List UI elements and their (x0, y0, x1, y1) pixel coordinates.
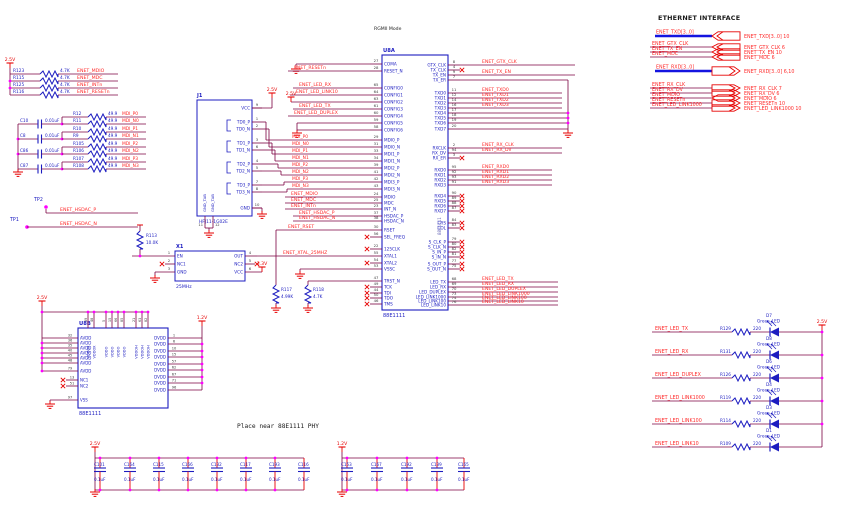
pin-name: VDDO (111, 346, 115, 357)
resistor (273, 285, 279, 303)
pin-name: AVDD (80, 361, 91, 366)
net-label: MDI_P1 (122, 126, 138, 132)
led-type: Green_LED (757, 342, 780, 347)
capacitor-value: 0.01uF (45, 133, 60, 138)
placement-note: Place near 88E1111 PHY (237, 423, 319, 430)
junction-dot (201, 356, 204, 359)
led-type: Green_LED (757, 319, 780, 324)
junction-dot (201, 382, 204, 385)
led-refdes: D1 (766, 428, 772, 433)
pin-name: TX_ER (432, 78, 446, 83)
pin-number: 82 (144, 318, 148, 322)
pin-number: 15 (172, 352, 177, 356)
pin-name: CONFIG0 (384, 86, 403, 91)
resistor-refdes: R118 (313, 287, 324, 292)
pin-number: 53 (374, 263, 379, 268)
pin-number: 54 (374, 257, 379, 262)
led-refdes: D8 (766, 336, 772, 341)
junction-dot (158, 457, 161, 460)
pin-name: OUT (234, 254, 243, 259)
net-label: ENET_MDC (652, 51, 679, 57)
capacitor-value: 0.1uF (401, 477, 413, 482)
pin-number: 21 (132, 318, 136, 322)
resistor-value: 220 (753, 418, 761, 423)
pin-name: TD1_P (236, 141, 251, 146)
resistor-value: 4.7K (60, 89, 70, 95)
pin-name: MDI2_P (384, 166, 400, 171)
capacitor-value: 0.1uF (458, 477, 470, 482)
pin-name: VDDO (105, 346, 109, 357)
junction-dot (821, 377, 824, 380)
pin-name: NC1 (80, 378, 89, 383)
u8a-part-number: 88E1111 (383, 313, 405, 319)
pin-name: XTAL1 (384, 254, 397, 259)
resistor-refdes: R10 (73, 126, 82, 131)
pin-number: 91 (452, 179, 457, 184)
capacitor-value: 0.1uF (269, 477, 281, 482)
x1-frequency: 25MHz (176, 284, 192, 290)
power-label: 1.2V (337, 441, 348, 447)
pin-number: 6 (256, 144, 259, 149)
net-label: ENET_TXD[3..0] (656, 29, 694, 35)
capacitor-value: 0.01uF (45, 163, 60, 168)
net-label: ENET_RESETn (294, 65, 326, 71)
net-label: MDI_N0 (292, 141, 309, 147)
pin-number: 63 (138, 318, 142, 322)
resistor-value: 4.99K (281, 294, 293, 299)
offpage-chevron (729, 67, 735, 75)
net-label: MDI_N2 (122, 148, 139, 154)
pin-number: 31 (374, 141, 379, 146)
capacitor-value: 0.1uF (153, 477, 165, 482)
pin-number: 23 (374, 203, 379, 208)
u8a-refdes: U8A (383, 48, 395, 54)
pin-number: 56 (374, 231, 379, 236)
net-label: ENET_LED_RX (299, 82, 331, 88)
net-label: MDI_P1 (292, 148, 308, 154)
junction-dot (436, 457, 439, 460)
capacitor-value: 0.01uF (45, 118, 60, 123)
pin-name: GND_TAB (210, 194, 215, 212)
pin-number: 27 (374, 58, 379, 63)
net-label: ENET_GTX_CLK (482, 59, 518, 65)
pin-name: TXD6 (434, 121, 447, 126)
net-label: MDI_P2 (292, 162, 308, 168)
pin-name: GND_TAB (202, 194, 207, 212)
junction-dot (821, 400, 824, 403)
pin-number: 2 (256, 123, 259, 128)
net-label: ENET_LED_LINK1000 (652, 102, 702, 108)
net-label: MDI_N3 (292, 183, 309, 189)
pin-name: DVDD (154, 342, 166, 347)
pin-name: MDI2_N (384, 173, 400, 178)
pin-number: 50 (374, 292, 379, 297)
pin-number: 85 (120, 318, 124, 322)
led-type: Green_LED (757, 365, 780, 370)
junction-dot (821, 354, 824, 357)
junction-dot (346, 489, 349, 492)
pin-number: 39 (84, 318, 88, 322)
led-type: Green_LED (757, 388, 780, 393)
pin-name: RESET_N (384, 69, 403, 74)
resistor-refdes: R116 (13, 89, 24, 95)
pin-name: COL (437, 226, 446, 231)
net-label: ENET_LED_DUPLEX (294, 110, 338, 116)
led-type: Green_LED (757, 411, 780, 416)
pin-name: TD2_P (236, 162, 251, 167)
junction-dot (99, 457, 102, 460)
pin-name: VDDOH (135, 345, 139, 359)
pin-number: 36 (68, 338, 73, 342)
pin-number: 10 (255, 202, 260, 207)
capacitor-refdes: C167 (371, 462, 382, 467)
resistor-refdes: R12 (73, 111, 82, 116)
pin-name: DVDD (154, 381, 166, 386)
pin-number: 61 (374, 103, 379, 108)
resistor-refdes: R131 (720, 349, 731, 354)
pin-name: TD3_N (235, 190, 250, 195)
net-label: ENET_MDIO (291, 191, 318, 197)
junction-dot (141, 311, 144, 314)
pin-number: 62 (172, 365, 177, 369)
schematic-page: ETHERNET INTERFACE RGMII Mode Place near… (0, 0, 841, 507)
junction-dot (201, 343, 204, 346)
pin-name: DVDD (154, 336, 166, 341)
pin-name: MDC (384, 201, 394, 206)
pin-name: AVDD (80, 369, 91, 374)
junction-dot (123, 311, 126, 314)
net-label: MDI_N0 (122, 118, 139, 124)
pin-name: RXD7 (434, 209, 446, 214)
pin-number: 1 (256, 116, 259, 121)
junction-dot (129, 457, 132, 460)
pin-name: MDI1_P (384, 152, 400, 157)
pair-bracket (227, 141, 231, 152)
pin-name: LED_LINK10 (421, 303, 446, 308)
net-label: ENET_TXD3 (482, 102, 509, 108)
net-label: ENET_INTn (77, 82, 102, 88)
junction-dot (41, 311, 44, 314)
pin-name: TD3_P (236, 183, 251, 188)
pin-name: VDDOH (147, 345, 151, 359)
resistor (40, 92, 58, 98)
led-type: Green_LED (757, 434, 780, 439)
junction-dot (93, 311, 96, 314)
pair-bracket (227, 183, 231, 194)
pin-name: XTAL2 (384, 261, 397, 266)
net-label: ENET_MDC (77, 75, 103, 81)
pin-name: TDO (383, 296, 394, 301)
net-label: MDI_P0 (122, 111, 138, 117)
net-label: ENET_LED_RX (655, 349, 689, 355)
resistor-value: 220 (753, 372, 761, 377)
offpage-reference: ENET_RXD[3..0] 6,10 (744, 69, 794, 75)
capacitor-refdes: C139 (431, 462, 442, 467)
pin-number: 48 (68, 358, 73, 362)
pin-number: 46 (374, 298, 379, 303)
capacitor-value: 0.1uF (211, 477, 223, 482)
capacitor-refdes: C164 (124, 462, 135, 467)
pin-name: MDI1_N (384, 159, 400, 164)
net-label: ENET_RESETn (77, 89, 110, 95)
junction-dot (41, 357, 44, 360)
pin-number: 32 (68, 333, 73, 337)
rgmii-mode-label: RGMII Mode (374, 26, 402, 32)
pin-name: MDI3_P (384, 180, 400, 185)
junction-dot (117, 311, 120, 314)
net-label: MDI_P0 (292, 134, 308, 140)
led-refdes: D3 (766, 405, 772, 410)
resistor-value: 49.9 (108, 126, 118, 131)
schematic-canvas: ETHERNET INTERFACE RGMII Mode Place near… (0, 0, 841, 507)
pair-bracket (227, 162, 231, 173)
led-refdes: D4 (766, 382, 772, 387)
pin-name: TD0_P (236, 120, 251, 125)
net-label: ENET_RX_DV (482, 147, 512, 153)
junction-dot (105, 311, 108, 314)
pin-number: 64 (374, 89, 379, 94)
resistor-value: 10.0K (146, 240, 158, 245)
offpage-connector-out (712, 67, 740, 75)
j1-refdes: J1 (196, 93, 203, 99)
capacitor-refdes: C116 (298, 462, 309, 467)
junction-dot (376, 489, 379, 492)
capacitor-value: 0.1uF (124, 477, 136, 482)
junction-dot (821, 423, 824, 426)
capacitor-value: 0.1uF (182, 477, 194, 482)
pin-number: 8 (256, 186, 259, 191)
power-label: 3.3V (257, 261, 268, 267)
pin-name: TD0_N (235, 127, 250, 132)
resistor-value: 49.9 (108, 156, 118, 161)
capacitor-value: 0.1uF (341, 477, 353, 482)
pin-name: DVDD (154, 375, 166, 380)
pin-name: RSET (384, 228, 395, 233)
pin-name: MDIO (384, 195, 396, 200)
resistor-refdes: R109 (720, 441, 731, 446)
pin-number: 57 (172, 359, 177, 363)
pin-number: 1 (173, 333, 175, 337)
net-label: MDI_N1 (122, 133, 139, 139)
power-label: 2.5V (37, 295, 48, 301)
pin-name: RXD3 (434, 183, 446, 188)
resistor (40, 85, 58, 91)
resistor (88, 166, 106, 172)
pin-number: 45 (68, 353, 73, 357)
junction-dot (41, 347, 44, 350)
power-label: 2.5V (5, 57, 16, 63)
pin-number: 22 (374, 243, 379, 248)
pin-name: GND (177, 270, 187, 275)
pin-name: TMS (383, 302, 393, 307)
pin-number: 2 (168, 258, 171, 263)
net-label: ENET_RXD[3..0] (656, 64, 694, 70)
capacitor-refdes: C193 (269, 462, 280, 467)
pin-name: VSS (80, 398, 88, 403)
resistor-refdes: R106 (73, 148, 84, 153)
resistor-refdes: R113 (146, 233, 157, 238)
pin-number: 43 (374, 183, 379, 188)
junction-dot (87, 311, 90, 314)
pin-name: VDDO (117, 346, 121, 357)
pin-number: 5 (102, 320, 106, 322)
resistor-refdes: R129 (720, 326, 731, 331)
net-label: ENET_LED_LINK10 (655, 441, 699, 447)
j1-part-number: HFJ11-1G02E (199, 219, 228, 225)
pin-name: EN (177, 254, 183, 259)
pin-number: 97 (68, 395, 73, 399)
capacitor-refdes: C132 (211, 462, 222, 467)
junction-dot (139, 255, 142, 258)
capacitor-refdes: C101 (94, 462, 105, 467)
pin-number: 5 (256, 165, 259, 170)
net-label: ENET_LED_TX (299, 103, 331, 109)
resistor-value: 49.9 (108, 118, 118, 123)
resistor-refdes: R125 (13, 82, 24, 88)
net-label: ENET_HSDAC_P (60, 207, 96, 213)
capacitor-refdes: C192 (401, 462, 412, 467)
resistor (732, 444, 750, 450)
offpage-reference: ENET_LED_LINK1000 10 (744, 106, 801, 112)
pin-number: 20 (452, 123, 457, 128)
pin-name: CONFIG3 (384, 107, 403, 112)
capacitor-refdes: C10 (20, 118, 29, 123)
pin-name: TD1_N (235, 148, 250, 153)
resistor-value: 220 (753, 395, 761, 400)
net-label: MDI_N2 (292, 169, 309, 175)
resistor (732, 421, 750, 427)
net-label: ENET_LED_LINK1000 (655, 395, 705, 401)
junction-dot (187, 457, 190, 460)
resistor-refdes: R105 (73, 141, 84, 146)
capacitor-refdes: C166 (182, 462, 193, 467)
pin-number: 76 (452, 299, 457, 304)
capacitor-refdes: C87 (20, 163, 29, 168)
offpage-reference: ENET_MDC 6 (744, 55, 775, 61)
pin-number: 11 (198, 223, 203, 227)
ethernet-interface-title: ETHERNET INTERFACE (658, 14, 740, 22)
resistor (88, 159, 106, 165)
pin-name: COMA (384, 62, 397, 67)
capacitor-refdes: C117 (240, 462, 251, 467)
junction-dot (41, 370, 44, 373)
pin-name: NC2 (234, 262, 243, 267)
led-refdes: D6 (766, 359, 772, 364)
pin-name: DVDD (154, 368, 166, 373)
resistor-refdes: R117 (281, 287, 292, 292)
junction-dot (9, 87, 12, 90)
junction-dot (245, 489, 248, 492)
junction-dot (41, 352, 44, 355)
pin-number: 13 (70, 375, 75, 379)
net-label: ENET_LED_DUPLEX (655, 372, 702, 378)
junction-dot (216, 489, 219, 492)
pin-name: TCK (383, 285, 392, 290)
pin-name: VDDO (123, 346, 127, 357)
pin-name: VDDOX (87, 345, 91, 359)
pin-number: 87 (452, 205, 457, 210)
resistor (88, 144, 106, 150)
pin-name: MDI0_P (384, 138, 400, 143)
junction-dot (567, 117, 570, 120)
pin-name: TD2_N (235, 169, 250, 174)
junction-dot (436, 489, 439, 492)
pin-number: 49 (374, 281, 379, 286)
pin-number: 25 (374, 197, 379, 202)
pin-name: CONFIG2 (384, 100, 403, 105)
pin-name: DVDD (154, 349, 166, 354)
junction-dot (376, 457, 379, 460)
pin-name: DVDD (154, 362, 166, 367)
pin-number: 3 (168, 266, 171, 271)
power-label: 2.5V (286, 91, 297, 97)
net-label: ENET_RSET (288, 224, 314, 230)
resistor-value: 4.7K (60, 82, 70, 88)
pin-number: 79 (68, 366, 73, 370)
resistor-refdes: R108 (73, 163, 84, 168)
resistor-refdes: R9 (73, 133, 79, 138)
u8b-part-number: 88E1111 (79, 411, 101, 417)
pin-number: 81 (452, 251, 457, 256)
capacitor-value: 0.1uF (431, 477, 443, 482)
pin-number: 51 (70, 381, 75, 385)
net-label: ENET_XTAL_25MHZ (283, 250, 327, 256)
pin-name: CONFIG5 (384, 121, 403, 126)
net-label: MDI_N3 (122, 163, 139, 169)
capacitor-refdes: C115 (153, 462, 164, 467)
net-label: ENET_MDIO (77, 68, 105, 74)
x1-refdes: X1 (176, 244, 184, 250)
capacitor-value: 0.1uF (371, 477, 383, 482)
resistor-value: 49.9 (108, 111, 118, 116)
testpoint-pad (44, 205, 48, 209)
junction-dot (274, 457, 277, 460)
junction-dot (245, 457, 248, 460)
pin-name: NC2 (80, 384, 89, 389)
net-label: ENET_LED_LINK10 (482, 299, 524, 305)
pin-name: S_OUT_N (427, 267, 446, 272)
pin-name: CONFIG6 (384, 128, 403, 133)
pin-number: 83 (452, 222, 457, 227)
net-label: MDI_P2 (122, 141, 138, 147)
pin-name: HSDAC_N (384, 219, 404, 224)
offpage-reference: ENET_TXD[3..0] 10 (744, 34, 789, 40)
pin-number: 34 (374, 155, 379, 160)
junction-dot (201, 369, 204, 372)
resistor-value: 4.7K (60, 75, 70, 81)
pin-name: TXD7 (434, 127, 447, 132)
net-label: ENET_LED_LINK10 (296, 89, 338, 95)
net-label: ENET_TX_EN (482, 69, 511, 75)
capacitor-value: 0.1uF (240, 477, 252, 482)
pin-name: MDI3_N (384, 187, 400, 192)
resistor-value: 220 (753, 349, 761, 354)
pin-number: 12 (215, 223, 220, 227)
junction-dot (41, 362, 44, 365)
pin-number: 42 (374, 176, 379, 181)
pin-name: TRST_N (383, 279, 400, 284)
net-label: MDI_P3 (122, 156, 138, 162)
junction-dot (9, 80, 12, 83)
pin-name: SEL_FREQ (384, 235, 406, 240)
pin-name: VCC (241, 106, 250, 111)
junction-dot (216, 457, 219, 460)
pin-number: 3 (256, 137, 259, 142)
resistor (732, 375, 750, 381)
junction-dot (99, 489, 102, 492)
resistor-value: 4.7K (313, 294, 323, 299)
resistor-refdes: R114 (720, 418, 731, 423)
